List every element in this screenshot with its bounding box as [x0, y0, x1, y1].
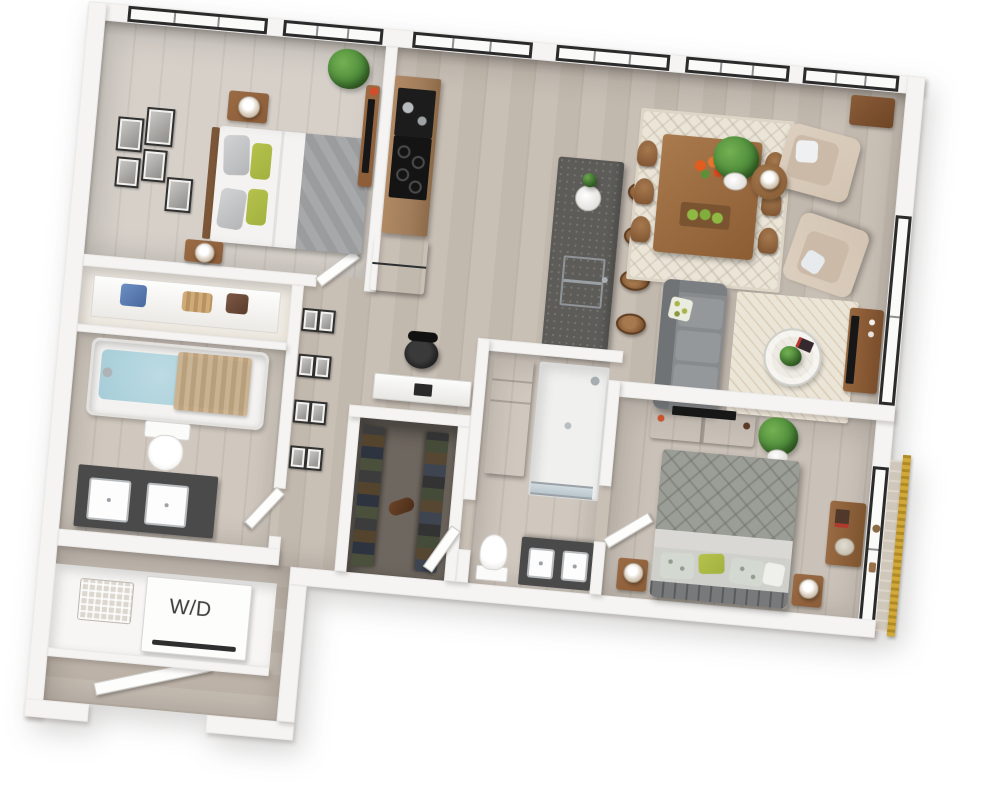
bed2-pillow	[728, 557, 765, 588]
vanity-sink	[527, 547, 556, 579]
bed1	[210, 126, 372, 255]
bed2-pillow	[660, 552, 695, 579]
floor-plan-canvas: W/D	[0, 0, 1004, 786]
balcony-chair	[868, 562, 876, 573]
washer-door-slot	[152, 640, 236, 653]
bed1-fold-line	[271, 131, 285, 247]
bed2	[649, 449, 800, 609]
dining-chair	[633, 177, 655, 205]
wall-art-frame	[141, 149, 168, 183]
bed2-white-pillow	[762, 562, 786, 587]
shelf-basket	[181, 291, 213, 314]
wall-art-frame	[164, 177, 193, 213]
bathtub	[85, 337, 269, 431]
sofa-cushion	[675, 330, 722, 364]
bathroom1-vanity	[73, 464, 218, 538]
fruit-bowl	[679, 202, 731, 230]
gallery-frame	[304, 447, 323, 471]
shower	[528, 362, 610, 502]
bed1-green-pillow	[250, 143, 273, 181]
bedroom2-desk	[825, 500, 867, 567]
shelf-brown-bag	[225, 293, 249, 315]
vanity-sink	[144, 482, 190, 528]
dining-chair	[757, 227, 779, 255]
island-vase-plant	[582, 173, 597, 188]
bathtub-wood-caddy	[173, 352, 252, 416]
desk-laptop	[414, 383, 433, 397]
washer-dryer-label: W/D	[168, 595, 212, 623]
wire-basket	[77, 578, 135, 625]
shelf-blue-bag	[120, 283, 148, 307]
bed2-green-pillow	[698, 554, 724, 574]
bed1-gray-pillow	[223, 135, 250, 176]
armchair-pillow	[795, 140, 818, 163]
island-faucet	[602, 277, 609, 284]
wall-art-frame	[144, 107, 175, 147]
desk-basket	[834, 537, 856, 557]
dining-chair	[636, 140, 658, 168]
desk-books	[834, 509, 850, 528]
refrigerator	[370, 236, 429, 295]
vanity-sink	[560, 550, 589, 582]
wall-art-frame	[114, 156, 141, 188]
bathroom2-vanity	[518, 537, 594, 591]
bed2-blanket	[655, 449, 800, 541]
shower-drain	[564, 422, 572, 430]
bed1-green-pillow	[245, 188, 268, 226]
washer-dryer: W/D	[140, 576, 252, 661]
bed1-gray-pillow	[216, 187, 248, 231]
gallery-frame	[313, 355, 332, 379]
vanity-sink	[86, 477, 132, 523]
gallery-frame	[309, 401, 328, 425]
island-vase	[574, 184, 602, 212]
cooktop	[388, 135, 431, 200]
toilet-bowl	[478, 533, 509, 571]
corner-console	[849, 95, 896, 129]
island-sink	[559, 255, 605, 309]
gallery-frame	[317, 309, 336, 333]
bathroom1-toilet	[139, 420, 191, 472]
apartment-floor-plan: W/D	[23, 1, 946, 786]
wall-art-frame	[116, 116, 145, 152]
toilet-bowl	[146, 433, 185, 472]
dining-chair	[629, 215, 651, 243]
wall-oven	[394, 88, 436, 139]
bathroom2-toilet	[474, 533, 510, 582]
shower-head	[590, 376, 600, 386]
